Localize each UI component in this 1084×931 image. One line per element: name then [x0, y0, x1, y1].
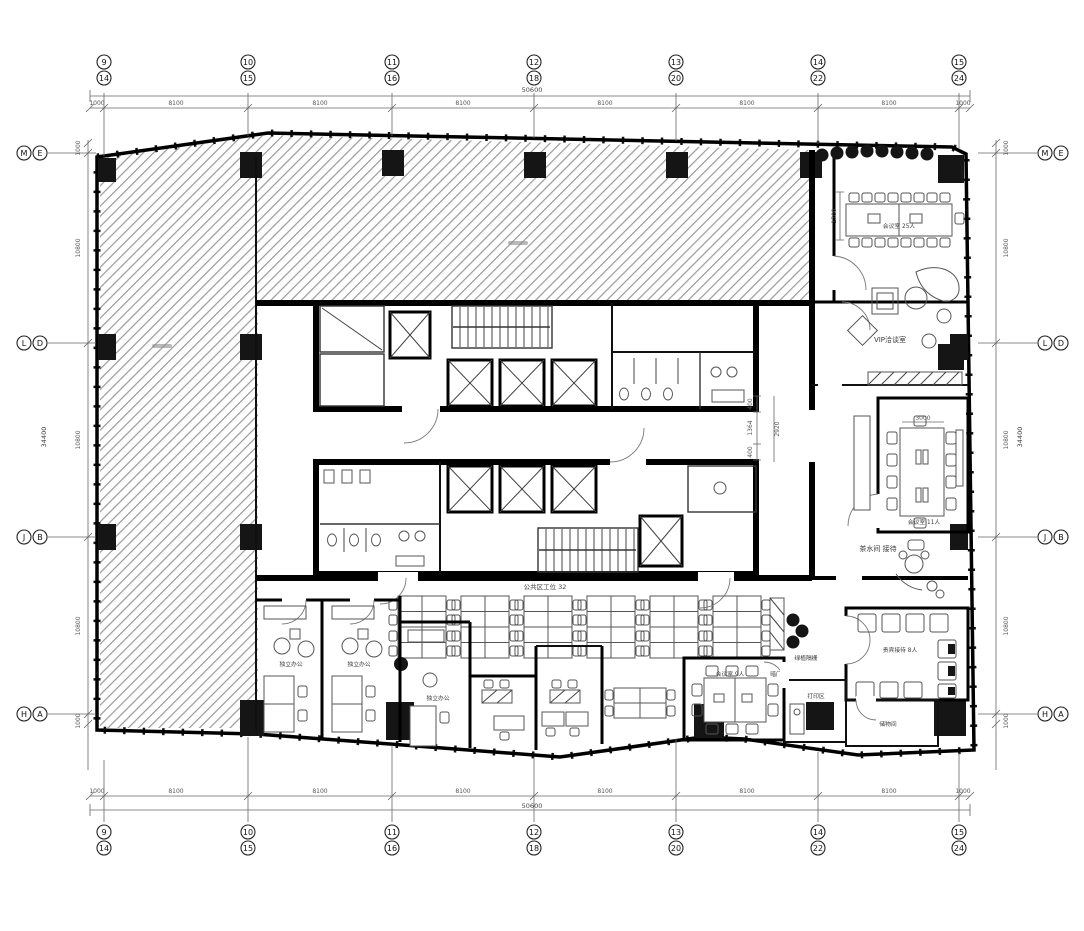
dim-400b: 400 [747, 446, 754, 458]
dim-bay: 8100 [739, 100, 754, 107]
dim-bay: 8100 [881, 788, 896, 795]
grid-bubble-label: 15 [954, 828, 964, 837]
conference-small-label: 会议室 9人 [716, 670, 745, 678]
grid-bubble-label: 15 [954, 58, 964, 67]
grid-bubble-label: 12 [529, 828, 539, 837]
dim-margin: 1000 [1003, 140, 1010, 155]
grid-bubble-label: 16 [387, 844, 397, 853]
grid-bubble-label: B [1058, 533, 1064, 542]
print-area-label: 打印区 [807, 692, 825, 700]
corridor-dimensions: 400 1364 400 2920 [747, 396, 781, 462]
grid-bubble-label: 14 [813, 828, 823, 837]
dim-margin: 1000 [955, 100, 970, 107]
grid-bubble-label: A [37, 710, 43, 719]
dim-bay: 8100 [312, 100, 327, 107]
faint-area-note [152, 344, 172, 348]
grid-bubble-label: A [1058, 710, 1064, 719]
grid-bubble-label: 14 [99, 844, 109, 853]
grid-bubble-label: 14 [813, 58, 823, 67]
grid-bubbles-bottom: 9 14 10 15 11 16 12 18 13 20 14 22 15 24 [97, 825, 966, 855]
dim-1364: 1364 [747, 420, 754, 435]
dim-bay: 8100 [168, 788, 183, 795]
dim-3000: 3000 [915, 415, 930, 422]
dim-bay: 8100 [597, 788, 612, 795]
grid-bubble-label: 13 [671, 58, 681, 67]
grid-bubble-label: 11 [387, 58, 397, 67]
vip-reception-room: 贵宾接待 8人 [842, 608, 968, 700]
office-label: 独立办公 [426, 694, 449, 702]
dim-bay: 8100 [455, 100, 470, 107]
storage-label: 储物间 [879, 720, 897, 728]
grid-bubble-label: 22 [813, 74, 823, 83]
grid-bubble-label: 24 [954, 844, 964, 853]
grid-bubbles-top: 9 14 10 15 11 16 12 18 13 20 14 22 15 24 [97, 55, 966, 85]
grid-bubble-label: 20 [671, 74, 681, 83]
grid-bubble-label: 10 [243, 828, 253, 837]
grid-bubble-label: 16 [387, 74, 397, 83]
corridor-doors [404, 409, 644, 462]
dim-bay: 10800 [1003, 238, 1010, 257]
office-label: 独立办公 [347, 660, 370, 668]
dim-bay: 10800 [1003, 430, 1010, 449]
office-room: 独立办公 [408, 630, 450, 746]
dim-margin: 1000 [1003, 713, 1010, 728]
pantry-label: 茶水间 接待 [859, 544, 896, 553]
dimension-band-left: 1000 10800 10800 10800 1000 34400 M E L … [17, 139, 96, 770]
grid-bubble-label: 12 [529, 58, 539, 67]
grid-bubble-label: D [37, 339, 43, 348]
storage-room: 储物间 [846, 696, 938, 746]
grid-bubble-label: 20 [671, 844, 681, 853]
total-dim-right: 34400 [1016, 427, 1024, 448]
dim-bay: 8100 [455, 788, 470, 795]
core-upper [316, 303, 756, 409]
print-area-room: 打印区 暗门 [764, 662, 846, 742]
floor-plan-canvas: 1700 会议室 25人 VIP洽谈室 3000 会议室 11人 [0, 0, 1084, 931]
plant-screen: 绿植隔栅 [770, 598, 818, 662]
grid-bubble-label: L [1043, 339, 1048, 348]
reception-chairs [856, 614, 956, 698]
dim-bay: 8100 [597, 100, 612, 107]
dimension-band-right: 1000 10800 10800 10800 1000 34400 M E L … [978, 139, 1068, 770]
grid-bubble-label: H [1042, 710, 1048, 719]
dim-bay: 8100 [881, 100, 896, 107]
open-office-label: 公共区工位 32 [524, 582, 567, 591]
grid-bubble-label: 24 [954, 74, 964, 83]
vip-reception-label: 贵宾接待 8人 [883, 646, 918, 654]
conference-mid-label: 会议室 11人 [908, 518, 941, 526]
total-dim-left: 34400 [40, 427, 48, 448]
plant-screen-label: 绿植隔栅 [794, 654, 817, 662]
dim-bay: 10800 [75, 238, 82, 257]
grid-bubble-label: B [37, 533, 43, 542]
elevator [390, 312, 596, 406]
grid-bubble-label: E [37, 149, 42, 158]
pantry-area: 茶水间 接待 [859, 544, 944, 598]
total-dim-top: 50600 [522, 86, 543, 94]
dim-margin: 1000 [75, 713, 82, 728]
grid-bubble-label: E [1058, 149, 1063, 158]
dim-bay: 8100 [168, 100, 183, 107]
grid-bubble-label: H [21, 710, 27, 719]
faint-area-note [508, 241, 528, 245]
dim-margin: 1000 [75, 140, 82, 155]
grid-bubble-label: 22 [813, 844, 823, 853]
grid-bubble-label: L [22, 339, 27, 348]
grid-bubbles-right: M E L D J B H A [1038, 146, 1068, 721]
grid-bubble-label: J [1043, 533, 1046, 542]
office-room: 独立办公 [264, 606, 314, 732]
dim-margin: 1000 [89, 788, 104, 795]
office-room: 独立办公 [332, 606, 382, 732]
grid-bubble-label: 9 [101, 58, 106, 67]
grid-bubble-label: 14 [99, 74, 109, 83]
grid-bubble-label: 9 [101, 828, 106, 837]
dim-bay: 8100 [739, 788, 754, 795]
grid-bubble-label: 13 [671, 828, 681, 837]
grid-bubble-label: D [1058, 339, 1064, 348]
grid-bubble-label: 11 [387, 828, 397, 837]
grid-bubble-label: 10 [243, 58, 253, 67]
total-dim-bottom: 50600 [522, 802, 543, 810]
dim-margin: 1000 [89, 100, 104, 107]
grid-bubble-label: 15 [243, 844, 253, 853]
private-offices: 独立办公 独立办公 独立办公 [256, 595, 675, 750]
dim-margin: 1000 [955, 788, 970, 795]
grid-bubble-label: M [1042, 149, 1049, 158]
dim-2920: 2920 [774, 421, 781, 436]
dim-400a: 400 [747, 398, 754, 410]
grid-bubble-label: 18 [529, 844, 539, 853]
grid-bubble-label: 15 [243, 74, 253, 83]
grid-bubble-label: J [22, 533, 25, 542]
core-lower [316, 462, 756, 574]
elevator [448, 466, 682, 566]
vip-room-label: VIP洽谈室 [874, 335, 906, 344]
dim-1700: 1700 [831, 208, 838, 223]
dim-bay: 10800 [1003, 616, 1010, 635]
office-label: 独立办公 [279, 660, 302, 668]
dim-bay: 10800 [75, 616, 82, 635]
meeting-pods [482, 680, 675, 740]
grid-bubble-label: 18 [529, 74, 539, 83]
dim-bay: 10800 [75, 430, 82, 449]
grid-bubble-label: M [21, 149, 28, 158]
floor-plan-page: 1700 会议室 25人 VIP洽谈室 3000 会议室 11人 [0, 0, 1084, 931]
dim-bay: 8100 [312, 788, 327, 795]
conference-large-label: 会议室 25人 [883, 222, 916, 230]
